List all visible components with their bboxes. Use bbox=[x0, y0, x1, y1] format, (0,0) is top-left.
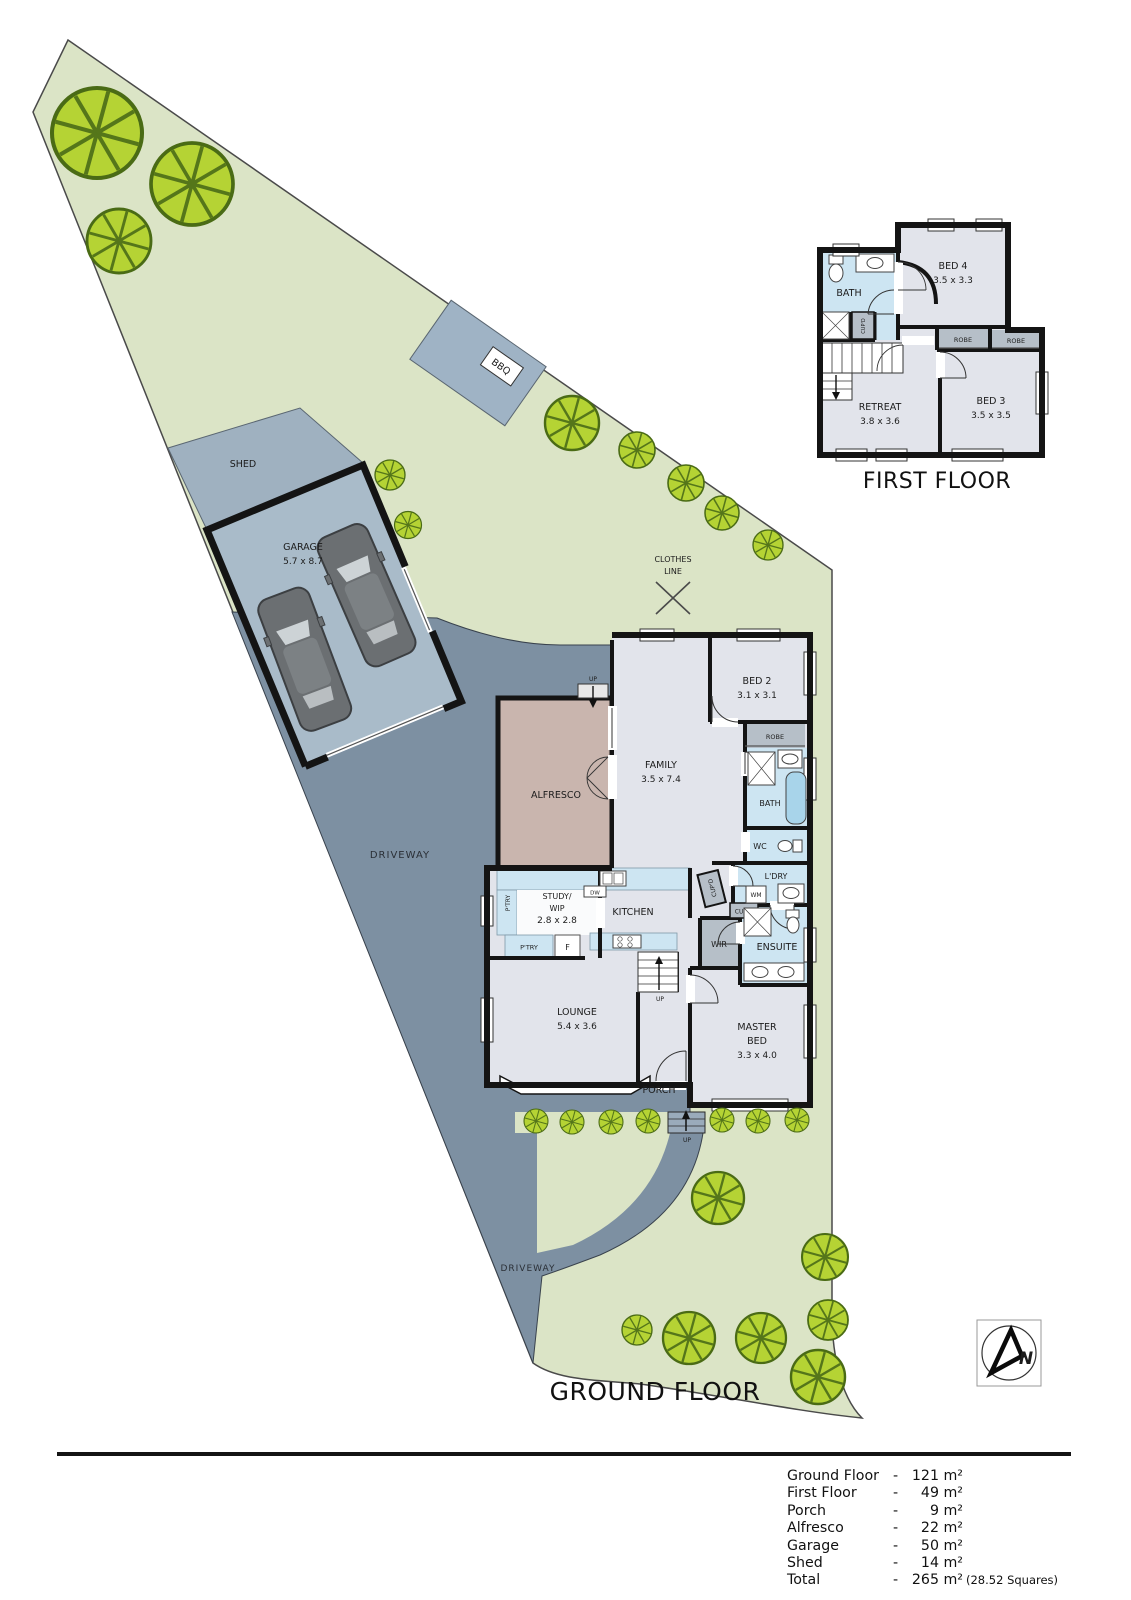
ldry-label: L'DRY bbox=[765, 872, 788, 881]
legend-row: First Floor-49 m² bbox=[787, 1485, 1058, 1502]
legend-row: Alfresco-22 m² bbox=[787, 1520, 1058, 1537]
ensuite-label: ENSUITE bbox=[757, 942, 798, 953]
master-dims: 3.3 x 4.0 bbox=[737, 1051, 777, 1061]
robe-left-label: ROBE bbox=[954, 336, 972, 344]
bed3-label: BED 3 bbox=[977, 396, 1006, 407]
master-label-1: MASTER bbox=[737, 1022, 777, 1033]
ground-floor-title: GROUND FLOOR bbox=[550, 1377, 761, 1406]
study-label-2: WIP bbox=[549, 904, 564, 913]
kitchen-label: KITCHEN bbox=[612, 907, 653, 918]
garage-dims: 5.7 x 8.7 bbox=[283, 557, 323, 567]
legend-row-total: Total-265 m²(28.52 Squares) bbox=[787, 1572, 1058, 1589]
alfresco-up-label: UP bbox=[589, 676, 597, 683]
robe-label: ROBE bbox=[766, 733, 784, 741]
wc-label: WC bbox=[753, 842, 767, 851]
divider-rule bbox=[57, 1452, 1071, 1456]
porch-label: PORCH bbox=[642, 1085, 675, 1096]
first-floor-plan: CUP'D BATH BED 4 3.5 x 3 bbox=[820, 219, 1048, 461]
study-dims: 2.8 x 2.8 bbox=[537, 916, 577, 926]
legend-row: Porch-9 m² bbox=[787, 1503, 1058, 1520]
retreat-label: RETREAT bbox=[859, 402, 902, 413]
family-dims: 3.5 x 7.4 bbox=[641, 775, 681, 785]
first-floor-title: FIRST FLOOR bbox=[863, 469, 1011, 494]
stairs-up-label: UP bbox=[656, 996, 664, 1003]
shed-label: SHED bbox=[230, 459, 257, 470]
wir-label: WIR bbox=[711, 940, 727, 949]
fridge-label: F bbox=[565, 943, 570, 952]
pantry-vert-label: P'TRY bbox=[505, 894, 512, 911]
driveway-label-upper: DRIVEWAY bbox=[370, 850, 430, 861]
bed4-label: BED 4 bbox=[939, 261, 968, 272]
floorplan-canvas: BBQ GARAGE 5. bbox=[0, 0, 1131, 1600]
porch-up-label: UP bbox=[683, 1137, 691, 1144]
floorplan-page: BBQ GARAGE 5. bbox=[0, 0, 1131, 1600]
legend-row: Garage-50 m² bbox=[787, 1538, 1058, 1555]
pantry-label: P'TRY bbox=[520, 944, 538, 952]
family-label: FAMILY bbox=[645, 760, 677, 771]
svg-text:CUP'D: CUP'D bbox=[861, 318, 867, 334]
dw-label: DW bbox=[590, 891, 600, 897]
alfresco-label: ALFRESCO bbox=[531, 790, 581, 801]
legend-row: Ground Floor-121 m² bbox=[787, 1468, 1058, 1485]
area-legend: Ground Floor-121 m² First Floor-49 m² Po… bbox=[787, 1468, 1058, 1590]
first-bath-label: BATH bbox=[836, 288, 861, 299]
svg-text:LINE: LINE bbox=[664, 567, 682, 576]
robe-right-label: ROBE bbox=[1007, 337, 1025, 345]
bath-label: BATH bbox=[759, 799, 780, 808]
driveway-label-lower: DRIVEWAY bbox=[500, 1264, 555, 1274]
bed2-dims: 3.1 x 3.1 bbox=[737, 691, 777, 701]
legend-row: Shed-14 m² bbox=[787, 1555, 1058, 1572]
ground-floor-plan: UP bbox=[481, 629, 816, 1111]
lounge-label: LOUNGE bbox=[557, 1007, 597, 1018]
wm-label: WM bbox=[750, 892, 761, 899]
retreat-dims: 3.8 x 3.6 bbox=[860, 417, 900, 427]
bed3-dims: 3.5 x 3.5 bbox=[971, 411, 1011, 421]
garage-label: GARAGE bbox=[283, 542, 323, 553]
compass-n-label: N bbox=[1019, 1349, 1033, 1369]
wc-fixtures bbox=[778, 840, 802, 852]
master-label-2: BED bbox=[747, 1036, 767, 1047]
alfresco-area bbox=[498, 698, 612, 868]
svg-text:CLOTHES: CLOTHES bbox=[654, 555, 691, 564]
lounge-dims: 5.4 x 3.6 bbox=[557, 1022, 597, 1032]
bed2-label: BED 2 bbox=[743, 676, 772, 687]
bed4-dims: 3.5 x 3.3 bbox=[933, 276, 973, 286]
study-label-1: STUDY/ bbox=[542, 892, 571, 901]
north-compass: N bbox=[977, 1320, 1041, 1386]
